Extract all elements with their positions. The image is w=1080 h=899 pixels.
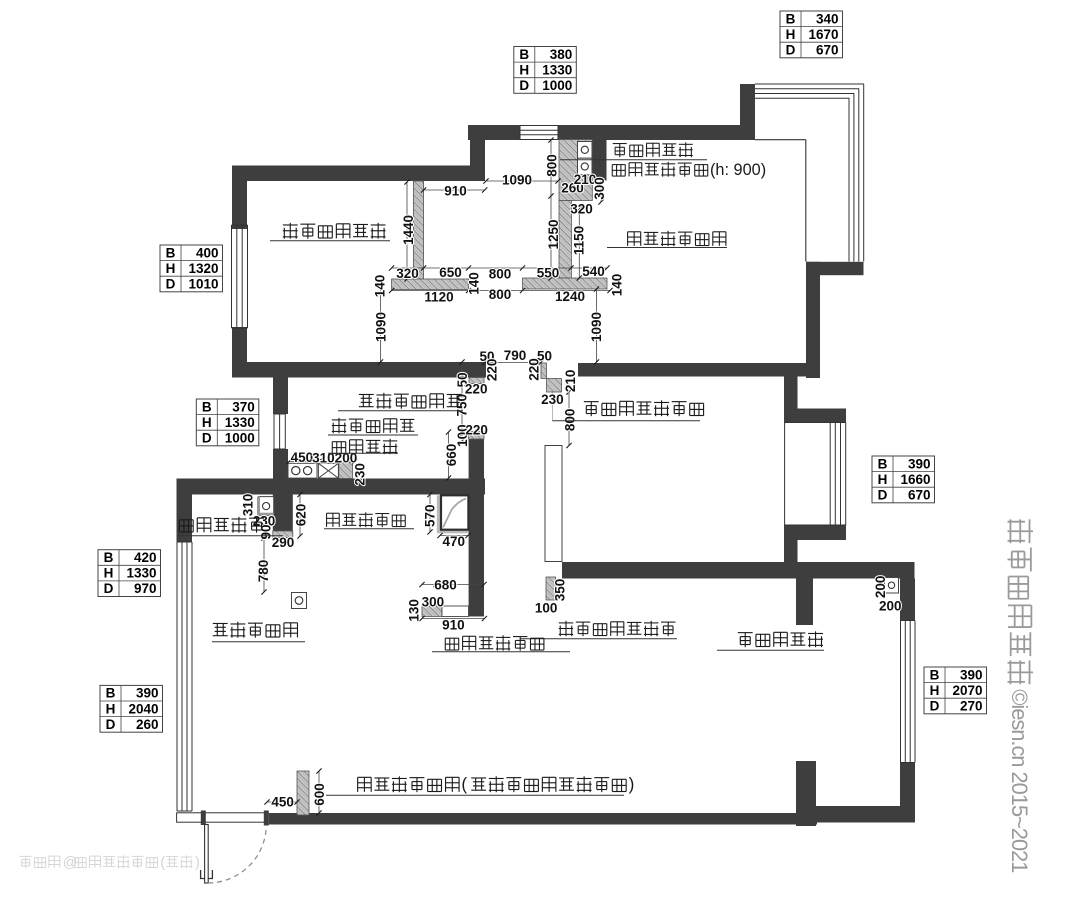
svg-text:B: B	[519, 47, 529, 62]
svg-text:B: B	[104, 550, 114, 565]
svg-text:670: 670	[908, 488, 931, 503]
svg-text:1090: 1090	[374, 312, 389, 342]
svg-text:B: B	[202, 399, 212, 414]
svg-text:570: 570	[423, 504, 438, 527]
svg-text:1090: 1090	[502, 173, 532, 188]
svg-text:B: B	[166, 245, 176, 260]
svg-text:220: 220	[465, 422, 488, 437]
svg-text:970: 970	[134, 581, 157, 596]
svg-text:600: 600	[312, 783, 327, 806]
svg-text:D: D	[519, 78, 529, 93]
svg-text:450: 450	[291, 450, 314, 465]
svg-text:1670: 1670	[808, 27, 838, 42]
svg-text:(: (	[160, 855, 165, 871]
svg-text:230: 230	[353, 463, 368, 486]
svg-text:H: H	[202, 415, 212, 430]
svg-text:140: 140	[467, 272, 482, 295]
svg-text:D: D	[106, 717, 116, 732]
svg-text:800: 800	[562, 409, 577, 432]
svg-text:320: 320	[570, 202, 593, 217]
svg-text:1150: 1150	[572, 226, 587, 255]
svg-text:800: 800	[489, 287, 512, 302]
svg-text:210: 210	[563, 370, 578, 393]
svg-text:1240: 1240	[555, 289, 585, 304]
svg-text:D: D	[104, 581, 114, 596]
svg-text:): )	[629, 774, 635, 794]
svg-text:1010: 1010	[188, 277, 218, 292]
svg-text:H: H	[519, 62, 529, 77]
svg-text:1090: 1090	[589, 312, 604, 342]
svg-text:1660: 1660	[900, 472, 930, 487]
svg-text:D: D	[786, 43, 796, 58]
svg-text:260: 260	[136, 717, 159, 732]
svg-text:130: 130	[407, 599, 422, 622]
svg-text:350: 350	[553, 579, 568, 602]
svg-text:390: 390	[136, 686, 159, 701]
svg-text:200: 200	[873, 576, 888, 599]
svg-text:B: B	[786, 11, 796, 26]
svg-text:780: 780	[256, 560, 271, 583]
svg-text:540: 540	[582, 264, 605, 279]
svg-text:1440: 1440	[401, 215, 416, 245]
svg-text:H: H	[878, 472, 888, 487]
svg-text:470: 470	[443, 534, 466, 549]
svg-text:220: 220	[484, 359, 499, 382]
svg-text:H: H	[166, 261, 176, 276]
svg-text:300: 300	[422, 595, 445, 610]
svg-text:200: 200	[879, 598, 902, 613]
svg-text:390: 390	[908, 456, 931, 471]
svg-text:D: D	[930, 699, 940, 714]
svg-text:1000: 1000	[542, 78, 572, 93]
svg-text:D: D	[878, 488, 888, 503]
svg-text:100: 100	[535, 600, 558, 615]
svg-text:680: 680	[434, 578, 457, 593]
svg-text:2070: 2070	[952, 683, 982, 698]
svg-text:1320: 1320	[188, 261, 218, 276]
svg-text:230: 230	[541, 392, 564, 407]
svg-text:670: 670	[816, 43, 839, 58]
svg-text:B: B	[878, 456, 888, 471]
svg-text:370: 370	[232, 399, 255, 414]
svg-text:1120: 1120	[424, 290, 453, 305]
svg-text:450: 450	[271, 794, 294, 809]
svg-text:420: 420	[134, 550, 157, 565]
svg-text:1330: 1330	[542, 62, 572, 77]
svg-text:2040: 2040	[128, 701, 158, 716]
svg-text:B: B	[930, 667, 940, 682]
svg-text:300: 300	[592, 177, 607, 200]
svg-text:D: D	[202, 431, 212, 446]
svg-text:H: H	[786, 27, 796, 42]
svg-text:H: H	[104, 566, 114, 581]
svg-text:790: 790	[504, 348, 527, 363]
svg-text:1330: 1330	[225, 415, 255, 430]
svg-text:910: 910	[444, 184, 467, 199]
svg-text:320: 320	[396, 266, 419, 281]
svg-text:(: (	[461, 774, 467, 794]
svg-text:800: 800	[489, 267, 512, 282]
svg-text:): )	[195, 855, 200, 871]
svg-text:550: 550	[537, 266, 560, 281]
svg-text:340: 340	[816, 11, 839, 26]
svg-text:B: B	[106, 686, 116, 701]
svg-text:660: 660	[444, 444, 459, 467]
svg-text:290: 290	[272, 535, 295, 550]
svg-text:H: H	[106, 701, 116, 716]
svg-text:H: H	[930, 683, 940, 698]
svg-text:620: 620	[294, 504, 309, 527]
svg-text:140: 140	[373, 275, 388, 298]
svg-text:©iesn.cn 2015~2021: ©iesn.cn 2015~2021	[1007, 689, 1032, 873]
svg-text:1250: 1250	[546, 219, 561, 249]
svg-text:1330: 1330	[126, 566, 156, 581]
svg-text:380: 380	[550, 47, 573, 62]
svg-text:270: 270	[960, 699, 983, 714]
svg-text:(h: 900): (h: 900)	[710, 161, 766, 179]
svg-text:800: 800	[545, 154, 560, 177]
svg-text:D: D	[166, 277, 176, 292]
svg-text:390: 390	[960, 667, 983, 682]
svg-text:910: 910	[442, 618, 465, 633]
svg-text:1000: 1000	[225, 431, 255, 446]
svg-text:650: 650	[439, 265, 462, 280]
svg-text:400: 400	[196, 245, 219, 260]
svg-text:220: 220	[527, 358, 542, 381]
svg-text:140: 140	[610, 274, 625, 297]
